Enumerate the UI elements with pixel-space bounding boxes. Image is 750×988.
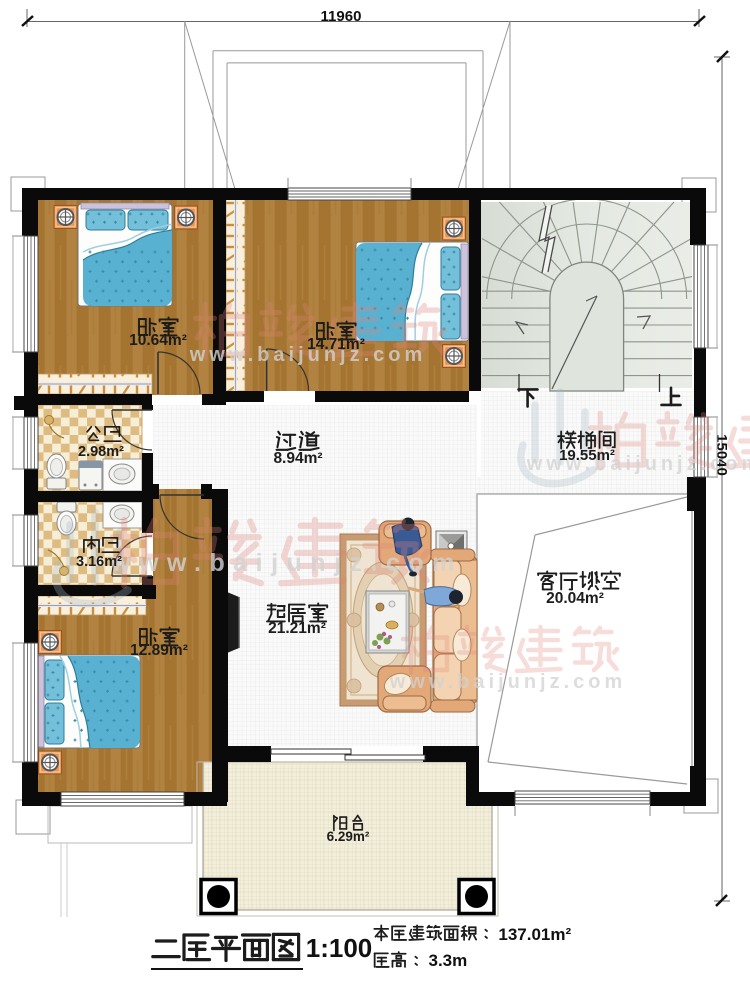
svg-text:6.29m²: 6.29m² (327, 829, 370, 844)
svg-text:14.71m²: 14.71m² (307, 336, 365, 353)
svg-text:8.94m²: 8.94m² (273, 450, 322, 467)
svg-text:10.64m²: 10.64m² (129, 332, 187, 349)
svg-text:3.16m²: 3.16m² (76, 554, 122, 570)
svg-text:19.55m²: 19.55m² (559, 447, 615, 464)
svg-text:www.baijunjz.com: www.baijunjz.com (110, 549, 463, 577)
svg-text:12.89m²: 12.89m² (130, 642, 188, 659)
svg-text:www.baijunjz.com: www.baijunjz.com (389, 671, 627, 693)
svg-text:137.01m²: 137.01m² (498, 925, 571, 944)
svg-text:11960: 11960 (321, 8, 362, 25)
svg-text:3.3m: 3.3m (429, 951, 468, 970)
svg-text:1:100: 1:100 (306, 933, 373, 963)
svg-text:21.21m²: 21.21m² (268, 620, 326, 637)
svg-text:2.98m²: 2.98m² (78, 444, 124, 460)
svg-text:20.04m²: 20.04m² (546, 590, 604, 607)
